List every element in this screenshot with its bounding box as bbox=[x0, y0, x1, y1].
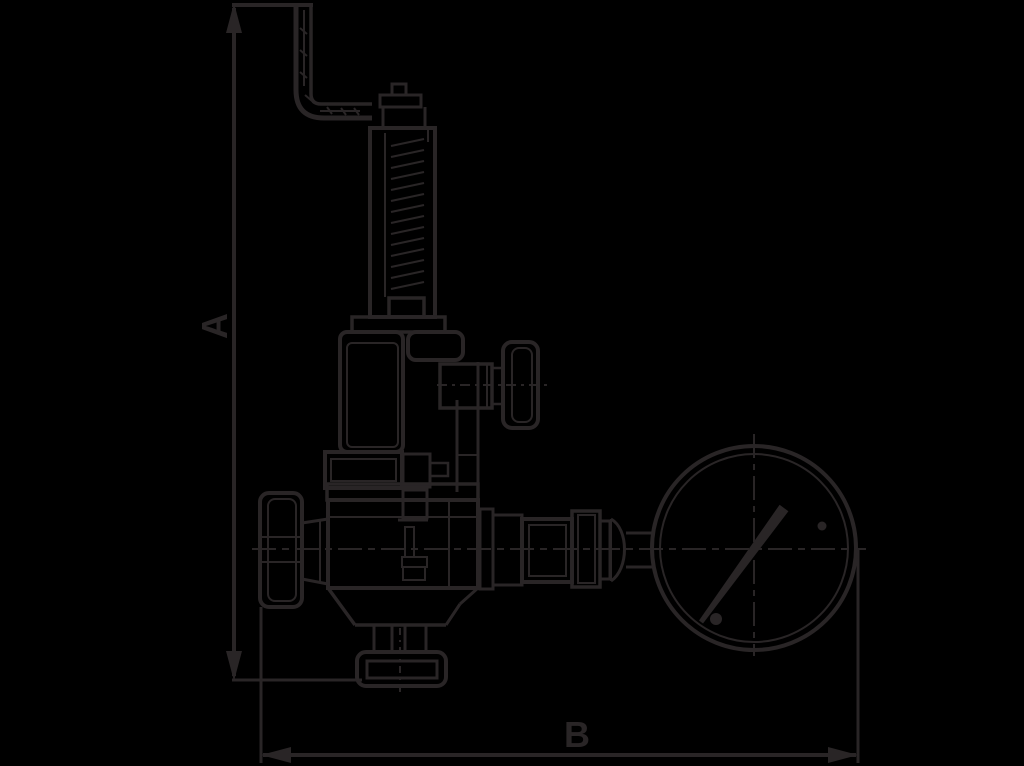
union-nut-inner bbox=[529, 525, 566, 576]
pressure-gauge bbox=[652, 434, 856, 656]
bonnet-inner bbox=[331, 459, 396, 481]
body-taper-right bbox=[460, 588, 478, 604]
outlet-downpipe bbox=[457, 362, 478, 492]
dimension-label-b: B bbox=[564, 717, 590, 753]
housing-flange bbox=[352, 317, 445, 332]
dimension-a-arrow-down bbox=[226, 651, 242, 681]
housing-cylinder bbox=[340, 332, 403, 452]
spindle-pin bbox=[392, 84, 406, 95]
gauge-dial-dot bbox=[818, 522, 827, 531]
side-block bbox=[408, 332, 463, 360]
spindle-cap bbox=[380, 95, 421, 107]
adjusting-spindle bbox=[370, 84, 435, 317]
housing-cylinder-inner bbox=[347, 343, 398, 447]
thread-hatching bbox=[391, 139, 424, 289]
valve-body bbox=[327, 484, 478, 695]
handwheel-stem-bottom bbox=[302, 579, 328, 584]
dimension-b-arrow-right bbox=[828, 747, 858, 763]
dimension-a-arrow-up bbox=[226, 3, 242, 33]
diagram-canvas: A B bbox=[0, 0, 1024, 766]
lever-inner-edge bbox=[311, 5, 372, 104]
gauge-needle bbox=[699, 505, 788, 624]
lever-knurl-ticks bbox=[300, 28, 359, 115]
bonnet-lug bbox=[430, 463, 448, 476]
spindle-nut bbox=[389, 298, 424, 317]
gauge-cock bbox=[437, 342, 550, 428]
gauge-needle-hub-dot bbox=[710, 613, 722, 625]
dimension-label-a: A bbox=[197, 313, 233, 339]
dimension-b-arrow-left bbox=[261, 747, 291, 763]
bonnet-side-block bbox=[403, 454, 430, 487]
lever-outer-edge bbox=[296, 5, 372, 118]
handwheel-stem-top bbox=[302, 519, 328, 523]
test-lever bbox=[296, 5, 372, 118]
body-taper-right bbox=[446, 604, 460, 625]
spindle-column bbox=[370, 128, 435, 317]
stem-guide bbox=[398, 490, 428, 580]
body-taper-left bbox=[328, 588, 355, 625]
outlet-flange bbox=[357, 652, 446, 686]
outlet-flange-inner bbox=[367, 661, 437, 678]
valve-drawing bbox=[0, 0, 1024, 766]
